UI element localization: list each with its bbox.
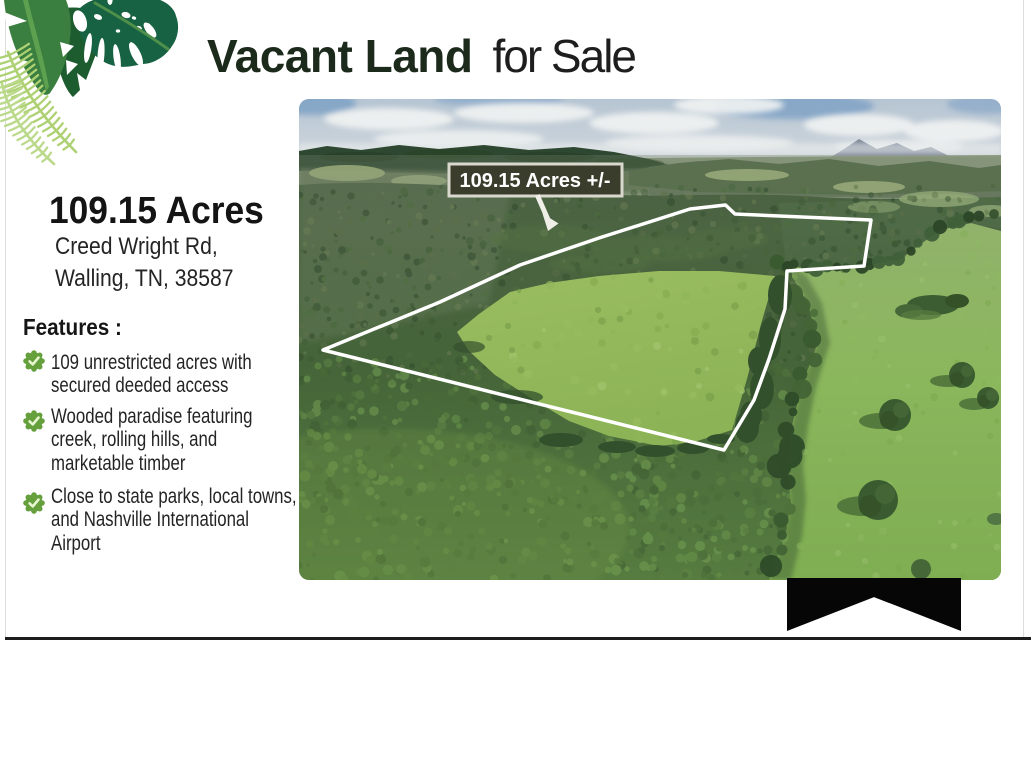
svg-text:109.15 Acres +/-: 109.15 Acres +/- [459,170,610,192]
